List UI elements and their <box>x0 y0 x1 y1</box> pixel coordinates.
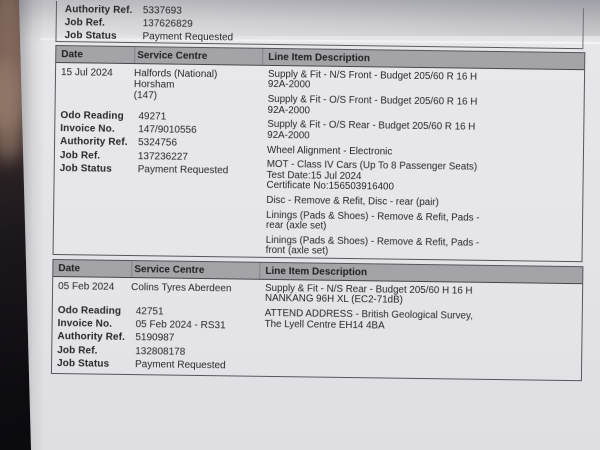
service-record-partial: Authority Ref. 5337693 Job Ref. 13762682… <box>55 1 584 49</box>
field-value: 5324756 <box>138 138 177 152</box>
field-value: Payment Requested <box>138 164 229 178</box>
field-value: 49271 <box>138 111 166 125</box>
field-value: 05 Feb 2024 - RS31 <box>135 319 225 333</box>
line-item: Supply & Fit - N/S Rear - Budget 205/60 … <box>265 284 578 309</box>
field-value: 147/9010556 <box>138 124 197 138</box>
date-service-row: 05 Feb 2024 Colins Tyres Aberdeen <box>58 281 259 295</box>
field-label: Odo Reading <box>60 110 138 124</box>
field-label: Job Status <box>60 163 138 177</box>
field-row: Job Status Payment Requested <box>57 358 258 374</box>
paper-edge-shade <box>19 0 45 450</box>
field-value: 137236227 <box>138 151 188 165</box>
field-label: Invoice No. <box>60 123 138 137</box>
record-meta-column: 15 Jul 2024 Halfords (National) Horsham … <box>54 63 263 257</box>
service-record-table-2: Date Service Centre Line Item Descriptio… <box>51 259 584 381</box>
record-date: 05 Feb 2024 <box>58 281 131 293</box>
line-item: Supply & Fit - O/S Rear - Budget 205/60 … <box>267 120 579 145</box>
line-item: Disc - Remove & Refit, Disc - rear (pair… <box>266 196 578 211</box>
field-value: 137626829 <box>143 18 193 32</box>
field-label: Job Ref. <box>57 345 135 359</box>
field-value: 42751 <box>136 306 164 320</box>
record-fields: Odo Reading 49271 Invoice No. 147/901055… <box>60 110 262 179</box>
line-item: Supply & Fit - O/S Front - Budget 205/60… <box>267 95 579 120</box>
column-header-service-centre: Service Centre <box>131 261 259 279</box>
document-photo: Authority Ref. 5337693 Job Ref. 13762682… <box>0 0 600 450</box>
record-date: 15 Jul 2024 <box>61 67 134 101</box>
field-label: Authority Ref. <box>60 136 138 150</box>
service-record-table-1: Date Service Centre Line Item Descriptio… <box>53 45 586 262</box>
field-value: 5190987 <box>135 332 174 346</box>
field-row: Job Status Payment Requested <box>60 163 261 179</box>
field-label: Authority Ref. <box>57 331 135 345</box>
field-label: Job Status <box>64 30 142 44</box>
record-fields: Odo Reading 42751 Invoice No. 05 Feb 202… <box>57 305 259 374</box>
line-items-column: Supply & Fit - N/S Rear - Budget 205/60 … <box>258 280 582 380</box>
field-label: Authority Ref. <box>65 4 143 18</box>
record-service-centre: Colins Tyres Aberdeen <box>131 282 257 295</box>
line-item: Supply & Fit - N/S Front - Budget 205/60… <box>268 70 580 95</box>
field-value: 5337693 <box>143 5 182 19</box>
paper-sheet: Authority Ref. 5337693 Job Ref. 13762682… <box>0 0 600 450</box>
line-item: Linings (Pads & Shoes) - Remove & Refit,… <box>266 236 578 261</box>
line-item: ATTEND ADDRESS - British Geological Surv… <box>265 309 578 334</box>
column-header-date: Date <box>56 46 134 63</box>
field-label: Job Status <box>57 358 135 372</box>
line-item: Wheel Alignment - Electronic <box>267 145 579 160</box>
document-content: Authority Ref. 5337693 Job Ref. 13762682… <box>50 1 588 450</box>
field-label: Job Ref. <box>65 17 143 31</box>
field-value: Payment Requested <box>135 359 226 373</box>
line-items-column: Supply & Fit - N/S Front - Budget 205/60… <box>260 66 585 261</box>
record-service-centre: Halfords (National) Horsham (147) <box>134 68 260 103</box>
field-label: Job Ref. <box>60 150 138 164</box>
date-service-row: 15 Jul 2024 Halfords (National) Horsham … <box>61 67 262 103</box>
field-value: 132808178 <box>135 346 185 360</box>
field-label: Odo Reading <box>58 305 136 319</box>
line-item: Linings (Pads & Shoes) - Remove & Refit,… <box>266 211 578 236</box>
column-header-date: Date <box>53 260 131 277</box>
column-header-service-centre: Service Centre <box>134 47 262 65</box>
table-body: 15 Jul 2024 Halfords (National) Horsham … <box>54 63 585 261</box>
field-label: Invoice No. <box>58 318 136 332</box>
record-meta-column: 05 Feb 2024 Colins Tyres Aberdeen Odo Re… <box>52 277 259 376</box>
line-item: MOT - Class IV Cars (Up To 8 Passenger S… <box>266 160 578 195</box>
table-body: 05 Feb 2024 Colins Tyres Aberdeen Odo Re… <box>52 277 582 380</box>
field-value: Payment Requested <box>142 31 233 45</box>
